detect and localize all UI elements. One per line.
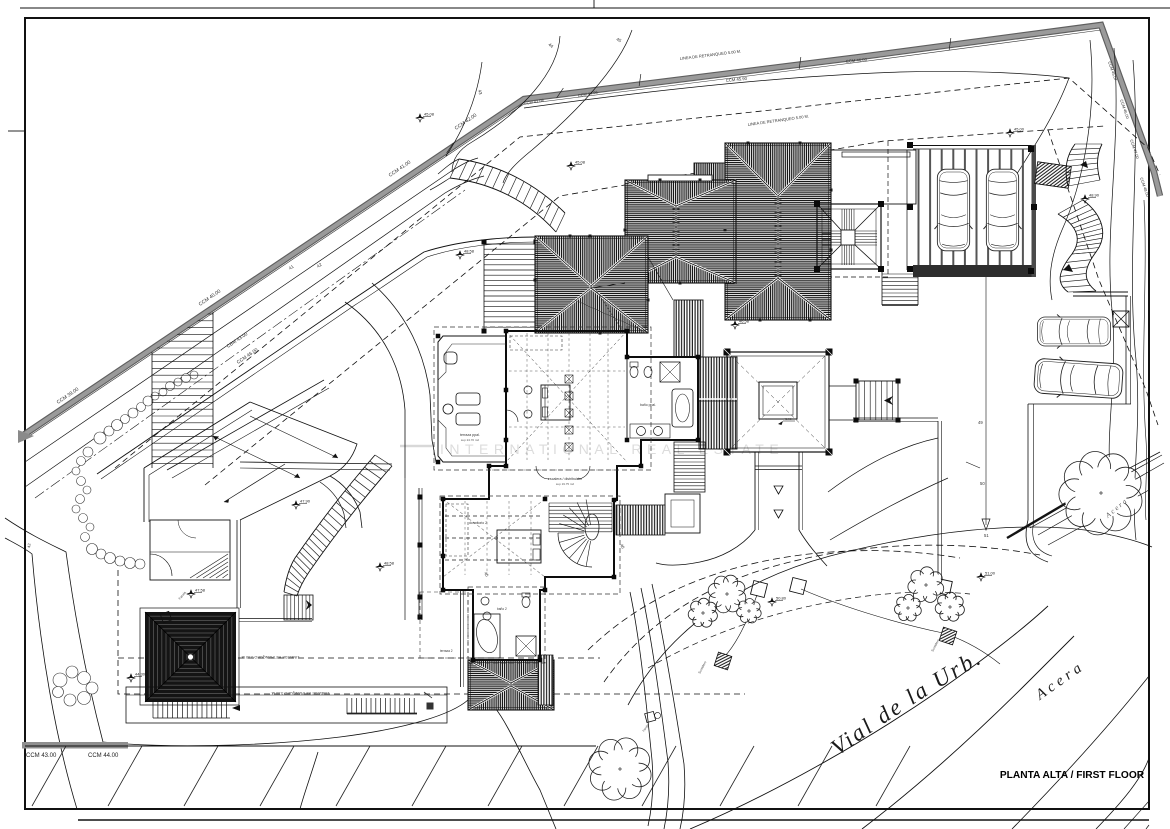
svg-text:51: 51: [984, 533, 989, 538]
svg-text:terraza ppal.: terraza ppal.: [460, 433, 480, 437]
svg-text:48.58: 48.58: [464, 249, 475, 254]
svg-text:PLANTA ALTA / FIRST FLOOR: PLANTA ALTA / FIRST FLOOR: [1000, 770, 1145, 781]
svg-text:45.08: 45.08: [575, 160, 586, 165]
svg-text:46.58: 46.58: [739, 319, 750, 324]
svg-text:50: 50: [980, 481, 985, 486]
svg-text:terraza 2: terraza 2: [440, 649, 453, 653]
svg-text:CCM 44.00: CCM 44.00: [88, 753, 119, 759]
svg-text:49: 49: [978, 420, 983, 425]
svg-text:50.80: 50.80: [776, 596, 787, 601]
svg-text:baño ppal.: baño ppal.: [640, 403, 656, 407]
svg-text:dormitorio 2: dormitorio 2: [469, 521, 487, 525]
svg-text:CCM 43.00: CCM 43.00: [26, 753, 57, 759]
svg-text:48.58: 48.58: [384, 561, 395, 566]
svg-text:sup 19.75 m2: sup 19.75 m2: [556, 482, 575, 486]
svg-text:sup 24.70 m2: sup 24.70 m2: [461, 438, 480, 442]
svg-text:48.90: 48.90: [784, 417, 792, 421]
svg-text:47.58: 47.58: [195, 588, 206, 593]
svg-text:LINEA DE RETRANQUEO 3.00 M.: LINEA DE RETRANQUEO 3.00 M.: [271, 691, 330, 695]
svg-text:44.30: 44.30: [135, 672, 146, 677]
svg-text:LINEA DE RETRANQUEO 5.00 M.: LINEA DE RETRANQUEO 5.00 M.: [241, 655, 300, 659]
svg-text:45.08: 45.08: [424, 112, 435, 117]
svg-text:baño 2: baño 2: [497, 607, 507, 611]
svg-text:45.00: 45.00: [1014, 127, 1025, 132]
svg-text:48.90: 48.90: [1089, 193, 1100, 198]
svg-text:51.00: 51.00: [985, 571, 996, 576]
svg-text:47.90: 47.90: [300, 499, 311, 504]
